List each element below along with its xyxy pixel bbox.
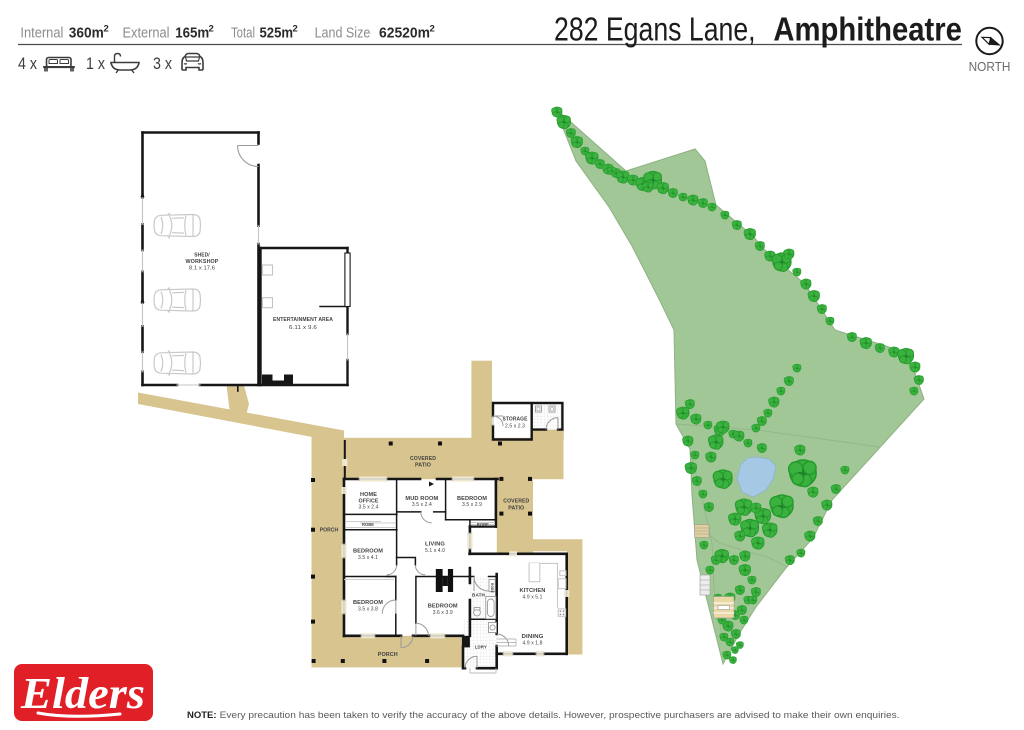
svg-text:LDRY: LDRY	[475, 644, 487, 649]
svg-text:COVERED: COVERED	[410, 456, 436, 462]
svg-text:2: 2	[209, 24, 214, 35]
svg-text:HOME: HOME	[360, 492, 377, 498]
svg-text:3.5 x 2.9: 3.5 x 2.9	[462, 502, 482, 508]
svg-text:4.9 x 5.1: 4.9 x 5.1	[523, 595, 543, 601]
svg-text:Elders: Elders	[20, 669, 145, 718]
svg-text:PATIO: PATIO	[508, 506, 524, 512]
svg-text:PORCH: PORCH	[378, 652, 398, 658]
svg-text:KITCHEN: KITCHEN	[520, 588, 546, 594]
svg-text:2.5 x 2.3: 2.5 x 2.3	[505, 424, 525, 430]
svg-text:5.1 x 4.0: 5.1 x 4.0	[425, 548, 445, 554]
svg-text:6.11 x 9.6: 6.11 x 9.6	[289, 325, 317, 331]
svg-text:BEDROOM: BEDROOM	[353, 600, 383, 606]
svg-text:BEDROOM: BEDROOM	[457, 496, 487, 502]
svg-text:BEDROOM: BEDROOM	[353, 549, 383, 555]
svg-text:PORCH: PORCH	[320, 528, 339, 534]
svg-text:Internal: Internal	[20, 25, 63, 42]
svg-text:4.9 x 1.8: 4.9 x 1.8	[523, 641, 543, 647]
svg-text:NOTE:Every precaution has been: NOTE:Every precaution has been taken to …	[187, 710, 900, 721]
svg-text:4 x: 4 x	[18, 54, 37, 73]
svg-text:165m: 165m	[175, 25, 209, 42]
svg-text:MUD ROOM: MUD ROOM	[405, 496, 438, 502]
svg-text:3.6 x 3.9: 3.6 x 3.9	[433, 610, 453, 616]
svg-text:282 Egans Lane, Amphitheatre: 282 Egans Lane, Amphitheatre	[554, 11, 962, 48]
svg-text:525m: 525m	[260, 25, 294, 42]
svg-text:1 x: 1 x	[86, 54, 105, 73]
svg-text:LIVING: LIVING	[425, 542, 445, 548]
svg-text:WORKSHOP: WORKSHOP	[186, 259, 219, 265]
svg-text:STORAGE: STORAGE	[503, 416, 528, 422]
svg-text:ROBE: ROBE	[477, 522, 489, 527]
svg-text:2: 2	[293, 24, 298, 35]
svg-text:3.5 x 3.8: 3.5 x 3.8	[358, 607, 378, 613]
svg-text:62520m: 62520m	[379, 25, 430, 42]
svg-text:BATH: BATH	[472, 592, 485, 597]
svg-text:3.5 x 4.1: 3.5 x 4.1	[358, 555, 378, 561]
svg-text:OFFICE: OFFICE	[359, 498, 379, 504]
svg-text:360m: 360m	[69, 25, 104, 42]
svg-text:DINING: DINING	[522, 634, 544, 640]
svg-text:3.5 x 2.4: 3.5 x 2.4	[359, 505, 380, 511]
svg-text:8.1 x 17.6: 8.1 x 17.6	[189, 265, 215, 271]
svg-text:2: 2	[430, 24, 435, 35]
svg-text:COVERED: COVERED	[503, 499, 529, 505]
svg-text:Total: Total	[231, 25, 255, 42]
svg-text:3 x: 3 x	[153, 54, 172, 73]
svg-text:External: External	[123, 25, 170, 42]
svg-text:BEDROOM: BEDROOM	[428, 604, 458, 610]
svg-text:Land Size: Land Size	[315, 25, 371, 42]
svg-text:2: 2	[104, 24, 109, 35]
svg-text:3.5 x 2.4: 3.5 x 2.4	[412, 502, 433, 508]
svg-text:NORTH: NORTH	[969, 60, 1011, 74]
svg-text:SHED/: SHED/	[194, 252, 210, 258]
svg-text:ENTERTAINMENT AREA: ENTERTAINMENT AREA	[273, 317, 334, 323]
svg-text:ROBE: ROBE	[490, 583, 494, 593]
svg-text:ROBE: ROBE	[362, 522, 374, 527]
svg-text:PATIO: PATIO	[415, 463, 431, 469]
